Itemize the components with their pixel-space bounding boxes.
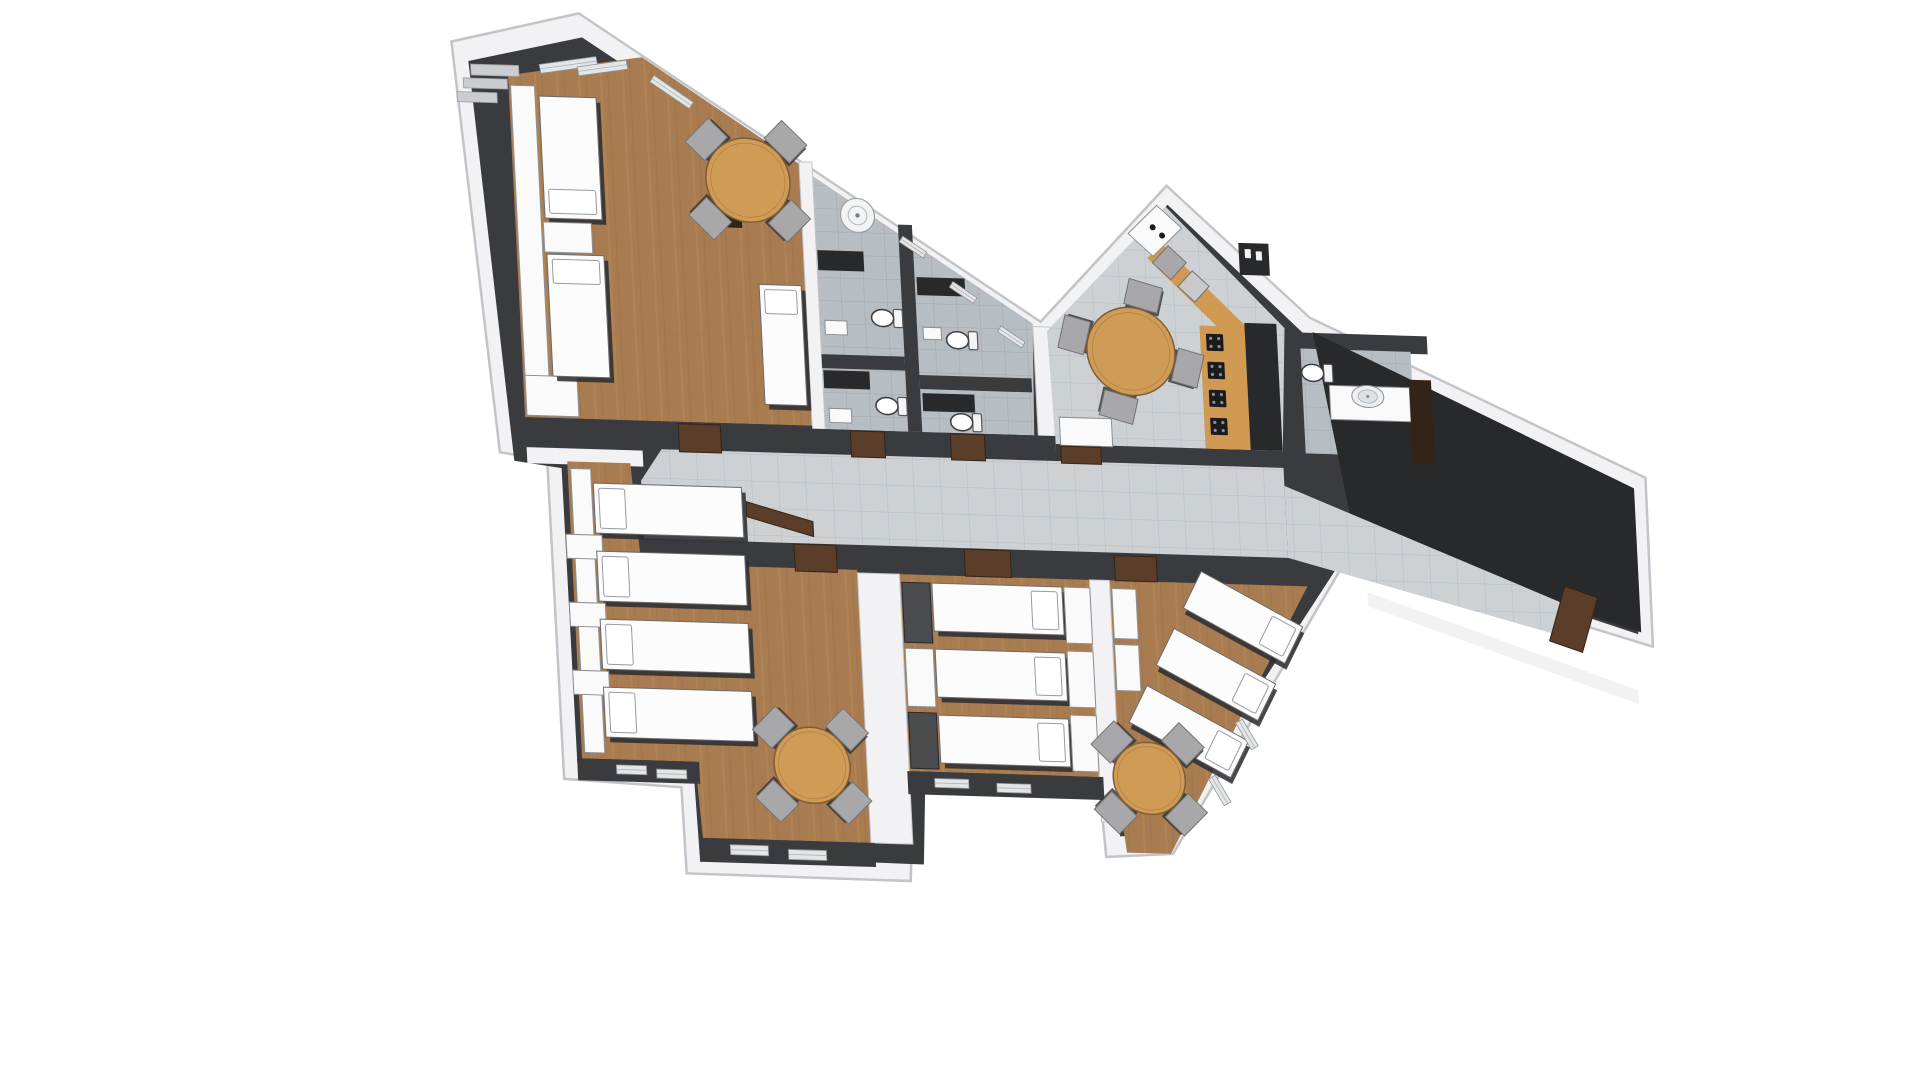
rbath-toilet bbox=[1301, 364, 1333, 383]
bath-counter bbox=[922, 393, 975, 413]
wall-bath-left-divider bbox=[822, 354, 906, 370]
exterior-sill bbox=[471, 64, 520, 76]
nightstand bbox=[543, 222, 593, 253]
exterior-sill bbox=[463, 78, 508, 89]
bath-sink bbox=[829, 408, 852, 423]
floor-plan-page: 3D floor plan model - hostel level with … bbox=[0, 0, 1920, 1080]
roomA-window bbox=[657, 769, 687, 779]
toilet bbox=[876, 397, 908, 416]
roomB-window bbox=[935, 778, 969, 788]
toilet bbox=[871, 309, 903, 328]
bed bbox=[935, 649, 1072, 706]
roomB-locker bbox=[902, 582, 933, 643]
kitchen-cabinet bbox=[1059, 417, 1112, 447]
door-threshold bbox=[678, 424, 721, 453]
floor-plan-canvas bbox=[0, 0, 1920, 1080]
kitchen-counter-dark bbox=[1244, 323, 1282, 451]
nightstand bbox=[1064, 587, 1093, 644]
bed bbox=[604, 687, 759, 747]
cap-corridor-junction bbox=[1284, 470, 1325, 489]
roomC-wardrobe bbox=[1115, 645, 1141, 692]
door-threshold bbox=[950, 434, 985, 461]
bath-sink bbox=[923, 327, 942, 340]
roomA-window bbox=[788, 849, 827, 860]
bed bbox=[593, 483, 748, 543]
toilet bbox=[950, 413, 982, 432]
toilet bbox=[946, 331, 978, 350]
cooktop bbox=[1210, 418, 1228, 436]
exterior-sill bbox=[457, 92, 498, 103]
roomA-window bbox=[730, 845, 769, 856]
cooktop bbox=[1209, 390, 1227, 408]
bed bbox=[938, 715, 1075, 772]
chimney bbox=[1238, 243, 1270, 276]
roomB-window bbox=[997, 783, 1031, 793]
bed bbox=[547, 254, 614, 383]
chimney-vent bbox=[1245, 249, 1251, 258]
roomB-locker bbox=[905, 648, 936, 707]
cooktop bbox=[1206, 334, 1224, 352]
roomC-wardrobe bbox=[1112, 589, 1139, 640]
bath-sink bbox=[825, 320, 848, 335]
chimney-vent bbox=[1256, 251, 1262, 260]
door-threshold bbox=[794, 544, 837, 572]
roomB-locker bbox=[908, 712, 939, 769]
door-threshold bbox=[1114, 556, 1157, 582]
bed bbox=[932, 583, 1069, 640]
roomA-window bbox=[616, 765, 646, 775]
bed bbox=[597, 551, 752, 611]
bath-counter bbox=[823, 370, 870, 389]
bed bbox=[539, 96, 606, 225]
door-threshold bbox=[964, 549, 1011, 577]
bed bbox=[759, 284, 811, 410]
door-threshold bbox=[1061, 446, 1102, 464]
door-threshold bbox=[850, 431, 885, 458]
rbath-cabinet bbox=[1409, 380, 1435, 465]
cooktop bbox=[1207, 362, 1225, 380]
bed bbox=[600, 619, 755, 679]
nightstand bbox=[1067, 651, 1096, 708]
bath-counter bbox=[817, 250, 864, 271]
